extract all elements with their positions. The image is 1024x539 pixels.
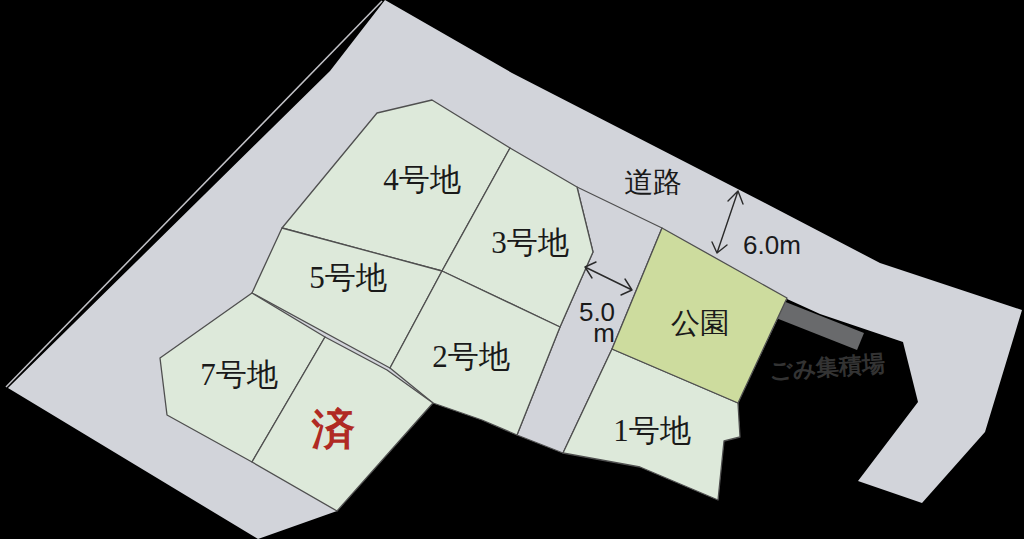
lot-2-label: 2号地 xyxy=(432,339,510,374)
lot-5-label: 5号地 xyxy=(309,260,387,295)
park-label: 公園 xyxy=(671,307,729,339)
dim-5m-unit-label: m xyxy=(593,318,615,348)
lot-3-label: 3号地 xyxy=(491,225,569,260)
lot-1-label: 1号地 xyxy=(613,413,691,448)
dim-6m-label: 6.0m xyxy=(743,230,801,260)
sold-label: 済 xyxy=(311,406,356,453)
lot-7-label: 7号地 xyxy=(200,357,278,392)
lot-4-label: 4号地 xyxy=(383,162,461,197)
road-label: 道路 xyxy=(624,166,682,198)
site-plan: 道路 6.0m 5.0 m 公園 ごみ集積場 1号地 2号地 3号地 4号地 5… xyxy=(0,0,1024,539)
